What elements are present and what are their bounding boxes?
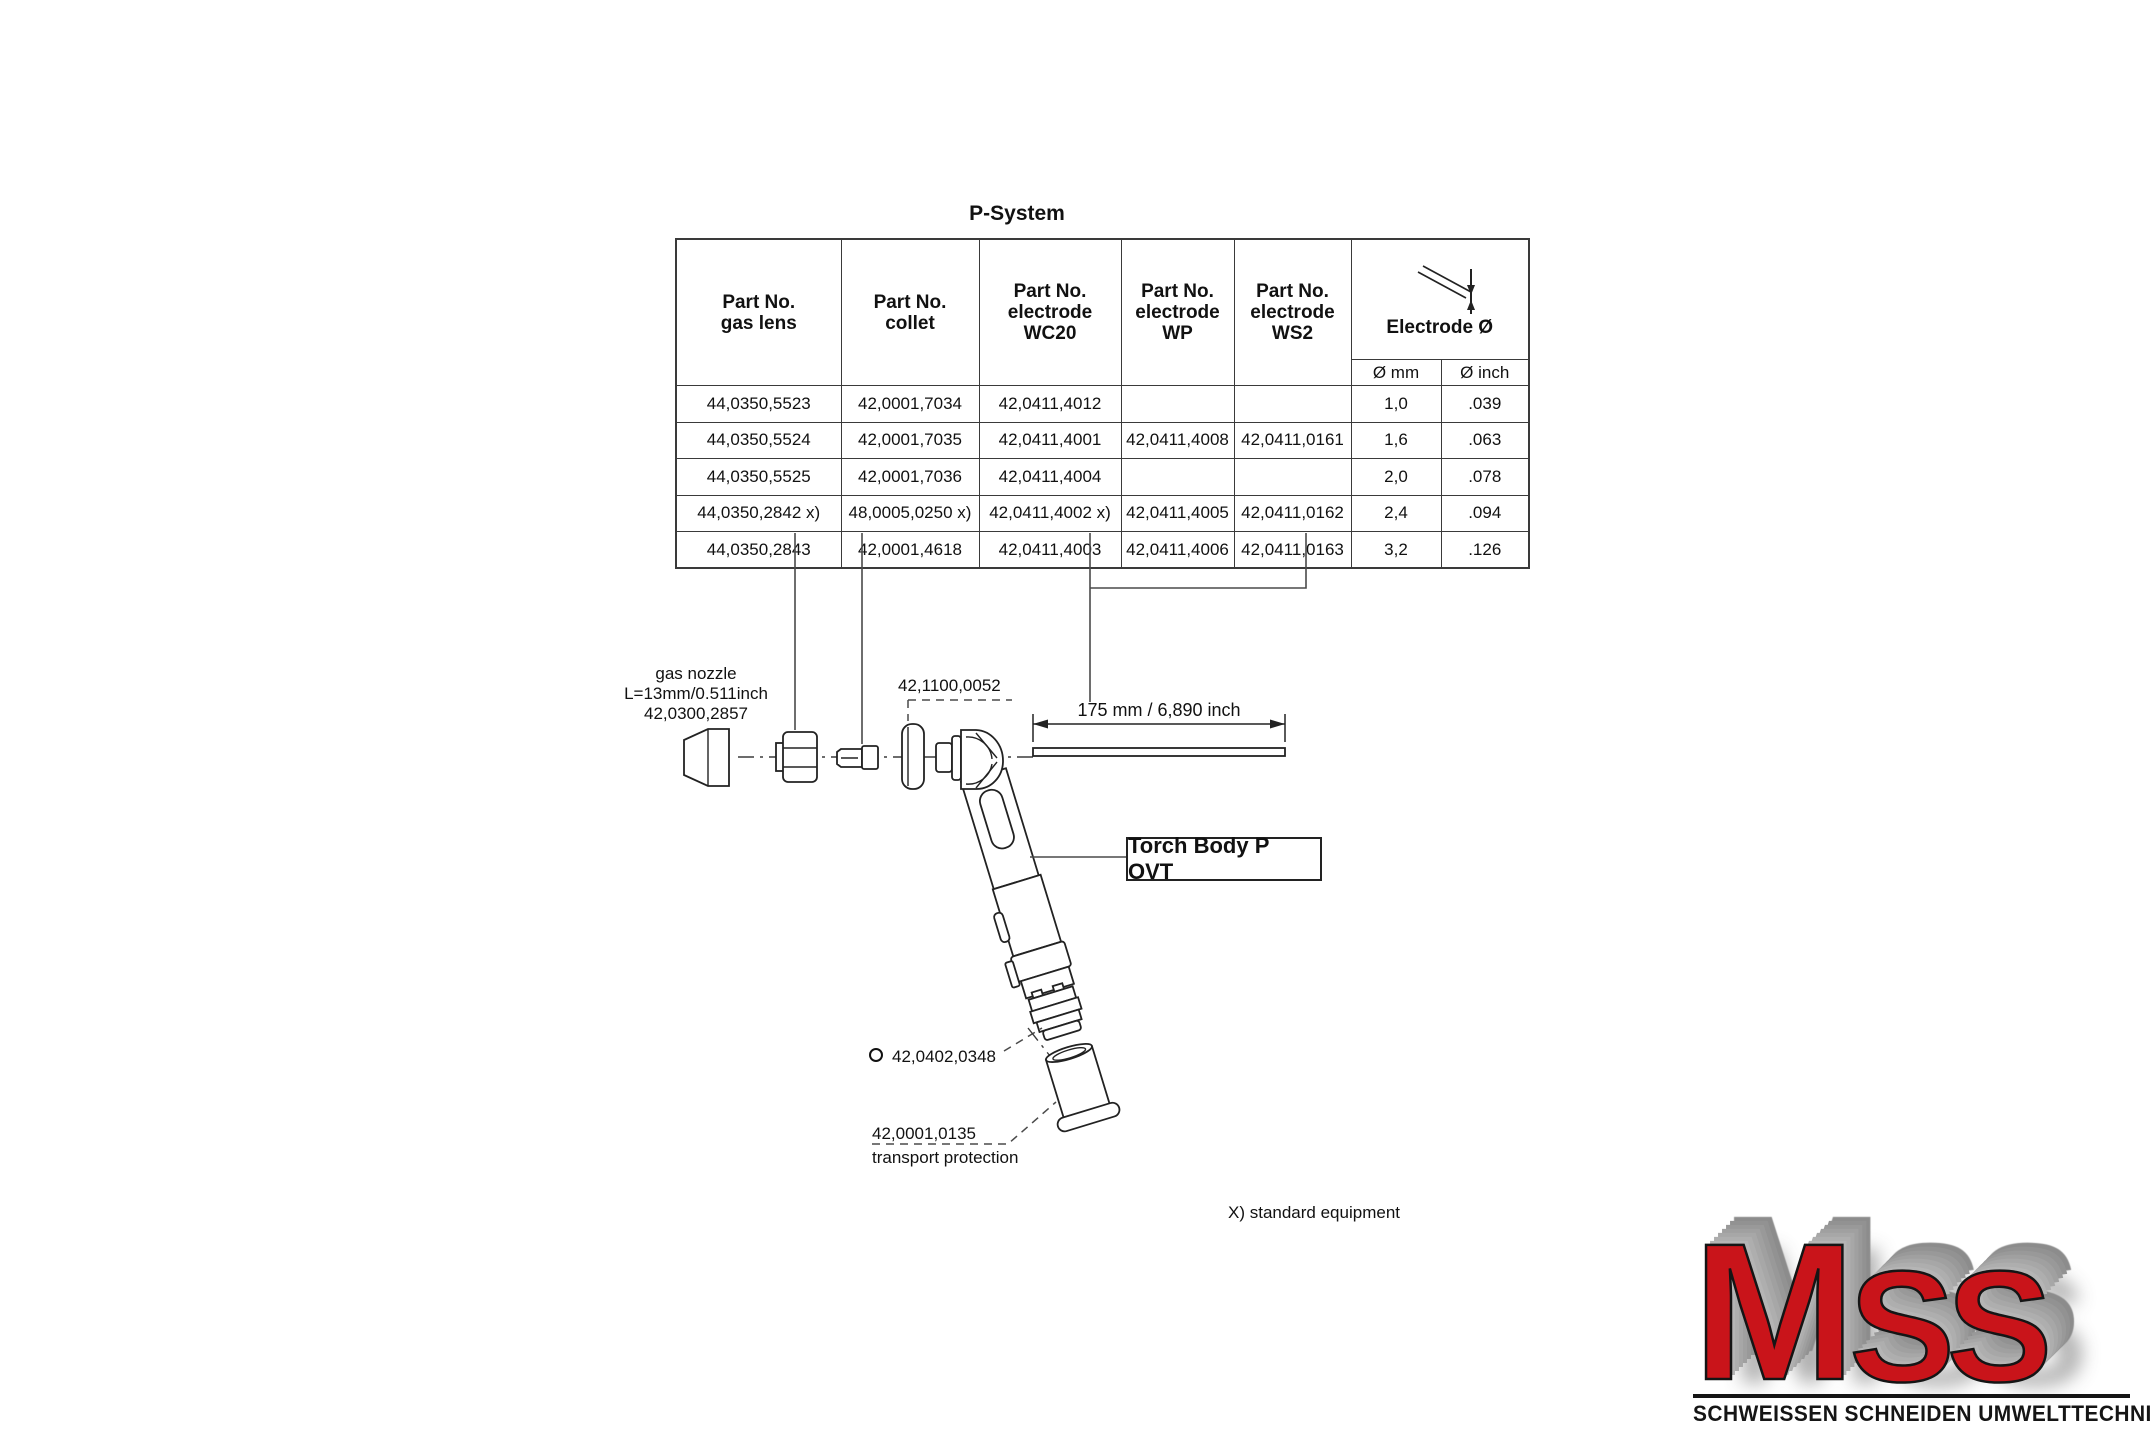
transport-protection-part (1037, 1038, 1122, 1133)
company-logo: M SS SCHWEISSEN SCHNEIDEN UMWELTTECHNIK (1693, 1218, 2130, 1427)
lens-insert-label: 42,1100,0052 (898, 676, 1001, 696)
logo-letters: M SS (1693, 1218, 2130, 1390)
transport-name-label: transport protection (872, 1148, 1018, 1168)
standard-equipment-footnote: X) standard equipment (1228, 1203, 1400, 1223)
collet-part (837, 746, 878, 769)
oring-icon (869, 1048, 883, 1062)
gas-nozzle-label: gas nozzle L=13mm/0.511inch 42,0300,2857 (556, 664, 836, 724)
gas-nozzle-part (684, 729, 729, 786)
torch-body-callout: Torch Body P OVT (1126, 837, 1322, 881)
torch-body-part (936, 730, 1090, 1045)
gas-lens-part (776, 732, 817, 782)
logo-letters-ss: SS (1849, 1264, 2044, 1390)
logo-letter-m: M (1693, 1234, 1849, 1390)
logo-caption: SCHWEISSEN SCHNEIDEN UMWELTTECHNIK (1693, 1401, 2108, 1427)
leader-electrode-connector (1090, 533, 1306, 588)
catalog-page: P-System Part No. gas lens Part No. coll… (0, 0, 2151, 1434)
transport-part-no-label: 42,0001,0135 (872, 1124, 976, 1144)
electrode-dimension-label: 175 mm / 6,890 inch (1033, 700, 1285, 721)
oring-label: 42,0402,0348 (892, 1047, 996, 1067)
